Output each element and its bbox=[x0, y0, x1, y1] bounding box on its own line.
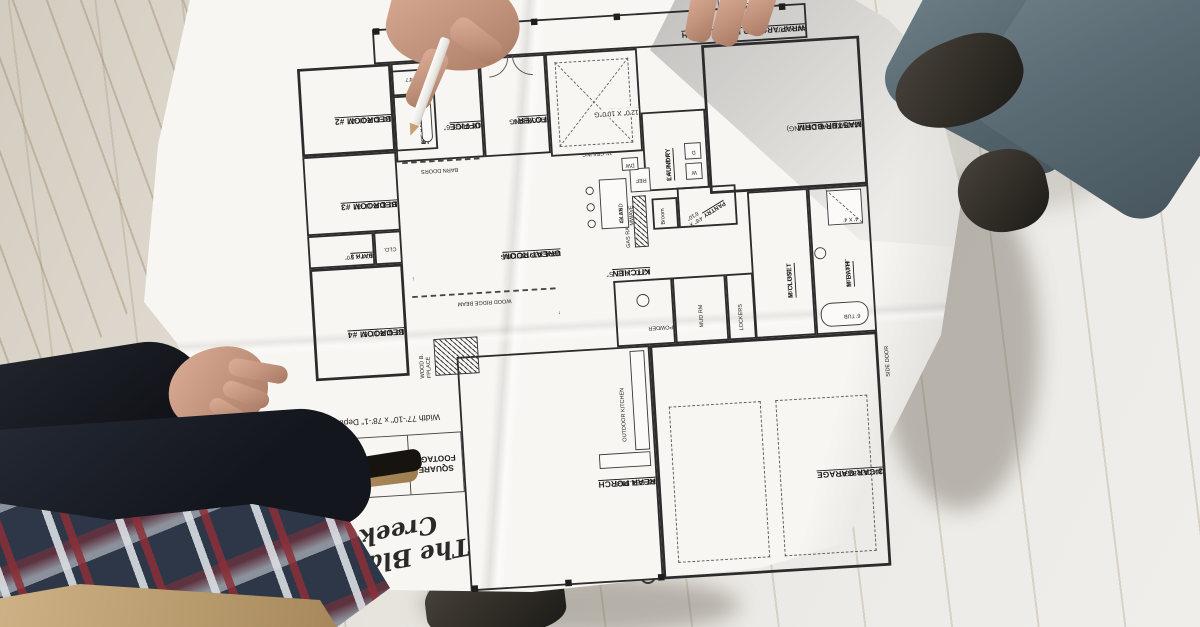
toilet-icon bbox=[814, 247, 827, 260]
porch-column bbox=[779, 3, 786, 10]
microwave-label: MWAVE bbox=[628, 189, 637, 226]
master-shower: 4' X 4' bbox=[826, 189, 863, 226]
porch-column bbox=[531, 18, 538, 25]
kitchen-island: 4X 8'6 ISLAND bbox=[599, 178, 630, 229]
porch-column bbox=[658, 574, 665, 581]
porch-column bbox=[565, 580, 572, 587]
porch-column bbox=[471, 585, 478, 592]
room-m-closet: M CLOSET 5'6" X 14'0" bbox=[747, 188, 817, 339]
room-garage: 3-CAR GARAGE 10' CEILING 24'-0" X 37'-4" bbox=[649, 331, 891, 579]
wood-ridge-beam-label: WOOD RIDGE BEAM bbox=[429, 295, 540, 308]
room-bedroom-4: BEDROOM #4 10' CLG 12'-0" X 11'-5" bbox=[309, 264, 410, 382]
room-foyer: FOYER 11' CEILING 7'-0" X 8'-6" bbox=[479, 54, 551, 157]
toilet-icon bbox=[636, 294, 650, 308]
arrow-down-icon: ↓ bbox=[412, 275, 415, 282]
room-m-bath: M BATH 9'8" X 14'0" 6' TUB 4' X 4' bbox=[807, 184, 877, 335]
photo-blueprint-scene: 3-CAR GARAGE 10' CEILING 24'-0" X 37'-4"… bbox=[0, 0, 1200, 627]
stool-icon bbox=[585, 186, 594, 195]
porch-column bbox=[373, 28, 380, 35]
floor-plan-drawing: 3-CAR GARAGE 10' CEILING 24'-0" X 37'-4"… bbox=[290, 0, 895, 609]
room-kitchen: KITCHEN 12'-0" X 18'-5" 4X 8'6 ISLAND MW… bbox=[555, 151, 651, 290]
stool-icon bbox=[587, 219, 596, 228]
room-great-room: GREAT ROOM VAULTED CEILING 19'-4 X 19'-8… bbox=[397, 157, 567, 356]
outdoor-kitchen-counter bbox=[629, 350, 650, 450]
room-pantry: PANTRY 4'8" X 6'10" bbox=[677, 184, 738, 228]
outdoor-kitchen-counter bbox=[599, 451, 651, 469]
outdoor-kitchen-label: OUTDOOR KITCHEN bbox=[618, 359, 630, 442]
arrow-up-icon: ↑ bbox=[558, 308, 561, 315]
door-swing-arc bbox=[512, 55, 533, 76]
master-tub: 6' TUB bbox=[820, 301, 869, 328]
room-bedroom-3: BEDROOM #3 10' CLG 11'-0" X 11'-3" bbox=[302, 152, 400, 237]
room-bedroom-2: BEDROOM #2 10' CLG 11'-2" X 11'-2" bbox=[297, 63, 396, 157]
dryer-icon: D bbox=[684, 142, 702, 160]
room-dining: DINING 12' TRAY CLG 12'0" X 10'0" bbox=[545, 48, 643, 156]
washer-icon: W bbox=[685, 162, 703, 180]
room-master-bdrm: MASTER BDRM (CATHEDRAL CEILING) 15'-0" X… bbox=[701, 36, 868, 194]
garage-stall-outline bbox=[775, 395, 876, 557]
porch-column bbox=[613, 13, 620, 20]
room-laundry: LAUNDRY 8'-8" X 9'-4" W D bbox=[641, 109, 710, 192]
stool-icon bbox=[586, 203, 595, 212]
room-bath-3: BATH 3 10'4" X 5'0" bbox=[307, 232, 375, 269]
garage-stall-outline bbox=[669, 401, 770, 563]
room-clo: CLO. bbox=[373, 230, 403, 265]
room-mud-rm: MUD RM bbox=[672, 274, 729, 343]
room-powder: POWDER bbox=[613, 278, 676, 348]
room-broom: Broom bbox=[651, 197, 679, 230]
dishwasher-icon: DW bbox=[621, 157, 638, 171]
